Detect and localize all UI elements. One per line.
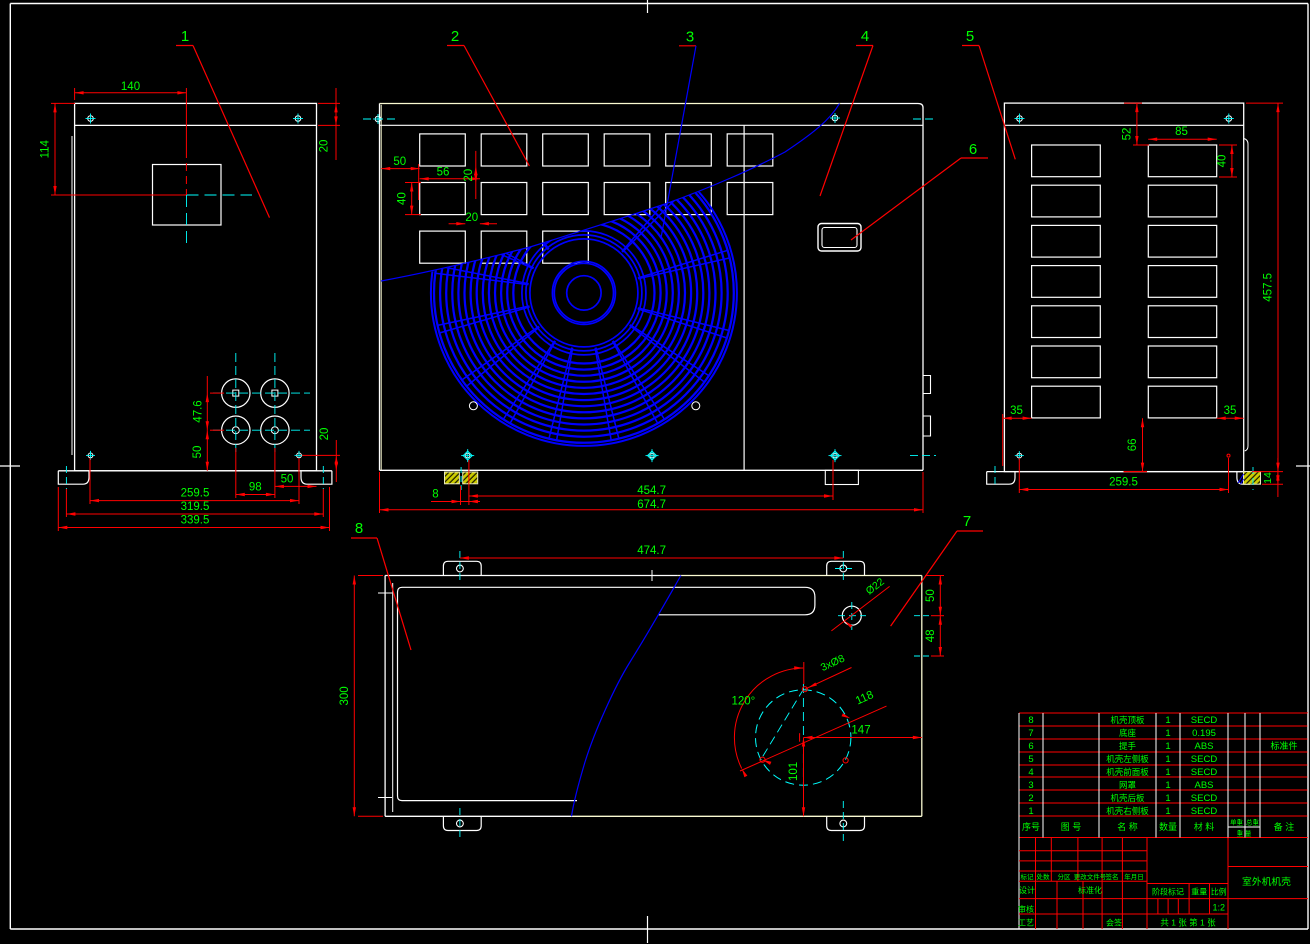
svg-text:457.5: 457.5: [1263, 273, 1275, 302]
svg-text:35: 35: [1224, 405, 1237, 417]
svg-text:1: 1: [1165, 728, 1170, 739]
svg-text:2: 2: [451, 28, 459, 45]
svg-text:年月日: 年月日: [1124, 872, 1144, 881]
svg-text:3: 3: [1028, 780, 1033, 791]
svg-text:7: 7: [1028, 728, 1033, 739]
svg-text:50: 50: [393, 156, 406, 168]
svg-text:SECD: SECD: [1191, 715, 1218, 726]
svg-text:50: 50: [925, 589, 937, 602]
svg-text:1:2: 1:2: [1212, 903, 1225, 913]
svg-text:SECD: SECD: [1191, 767, 1218, 778]
svg-text:8: 8: [1028, 715, 1033, 726]
svg-text:52: 52: [1121, 128, 1133, 141]
svg-text:20: 20: [465, 212, 478, 224]
svg-text:120°: 120°: [732, 696, 756, 708]
svg-text:3: 3: [686, 29, 694, 46]
svg-text:工艺: 工艺: [1018, 919, 1034, 928]
svg-text:网罩: 网罩: [1119, 780, 1137, 790]
svg-text:SECD: SECD: [1191, 754, 1218, 765]
svg-text:设计: 设计: [1019, 885, 1035, 895]
svg-text:签名: 签名: [1106, 872, 1119, 881]
svg-text:0.195: 0.195: [1192, 728, 1216, 739]
svg-text:机壳左侧板: 机壳左侧板: [1106, 754, 1149, 764]
svg-text:机壳前面板: 机壳前面板: [1106, 767, 1149, 777]
svg-text:序号: 序号: [1022, 821, 1040, 832]
svg-text:底座: 底座: [1119, 728, 1137, 738]
svg-text:1: 1: [1028, 806, 1033, 817]
svg-text:阶段标记: 阶段标记: [1152, 887, 1184, 897]
svg-text:48: 48: [925, 630, 937, 643]
svg-text:会签: 会签: [1106, 918, 1122, 928]
svg-text:标准件: 标准件: [1270, 740, 1297, 751]
svg-text:319.5: 319.5: [181, 501, 210, 513]
svg-text:6: 6: [969, 141, 977, 158]
svg-text:标准化: 标准化: [1078, 885, 1102, 895]
svg-text:总重: 总重: [1246, 818, 1260, 827]
svg-text:共 1 张 第 1 张: 共 1 张 第 1 张: [1160, 918, 1216, 928]
svg-text:室外机机壳: 室外机机壳: [1242, 875, 1291, 888]
svg-text:材 料: 材 料: [1194, 821, 1215, 832]
svg-text:35: 35: [1010, 405, 1023, 417]
svg-text:1: 1: [1165, 767, 1170, 778]
svg-text:474.7: 474.7: [637, 545, 666, 557]
svg-text:名 称: 名 称: [1117, 821, 1138, 832]
svg-text:处数: 处数: [1037, 872, 1051, 881]
svg-text:1: 1: [1165, 780, 1170, 791]
svg-text:259.5: 259.5: [1109, 477, 1138, 489]
svg-text:机壳顶板: 机壳顶板: [1110, 715, 1145, 725]
svg-text:40: 40: [1216, 155, 1228, 168]
svg-text:5: 5: [966, 28, 974, 45]
svg-text:674.7: 674.7: [637, 499, 666, 511]
svg-text:1: 1: [1165, 806, 1170, 817]
svg-text:114: 114: [40, 139, 52, 158]
svg-text:分区: 分区: [1058, 872, 1072, 881]
svg-text:比例: 比例: [1211, 887, 1227, 897]
svg-text:8: 8: [432, 489, 438, 501]
svg-text:20: 20: [319, 140, 331, 153]
svg-text:40: 40: [396, 192, 408, 205]
svg-text:101: 101: [788, 762, 800, 781]
svg-text:50: 50: [192, 446, 204, 459]
svg-text:8: 8: [355, 520, 363, 537]
svg-text:454.7: 454.7: [637, 485, 666, 497]
svg-text:SECD: SECD: [1191, 793, 1218, 804]
svg-text:259.5: 259.5: [181, 488, 210, 500]
svg-text:2: 2: [1028, 793, 1033, 804]
svg-text:ABS: ABS: [1194, 780, 1213, 791]
svg-text:1: 1: [1165, 793, 1170, 804]
svg-text:SECD: SECD: [1191, 806, 1218, 817]
svg-text:4: 4: [861, 28, 869, 45]
svg-text:1: 1: [181, 28, 189, 45]
svg-text:提手: 提手: [1119, 741, 1137, 751]
svg-text:重量: 重量: [1191, 887, 1207, 897]
svg-text:7: 7: [963, 513, 971, 530]
svg-text:更改文件号: 更改文件号: [1074, 872, 1107, 881]
svg-text:147: 147: [851, 725, 870, 737]
svg-text:20: 20: [463, 169, 475, 182]
svg-text:5: 5: [1028, 754, 1033, 765]
svg-text:重 量: 重 量: [1237, 830, 1252, 838]
svg-text:4: 4: [1028, 767, 1033, 778]
svg-text:14: 14: [1262, 472, 1274, 484]
svg-text:85: 85: [1175, 126, 1188, 138]
svg-text:300: 300: [339, 686, 351, 705]
svg-text:140: 140: [121, 81, 140, 93]
svg-text:50: 50: [281, 474, 294, 486]
svg-text:66: 66: [1127, 439, 1139, 452]
svg-text:20: 20: [319, 428, 331, 441]
svg-text:图 号: 图 号: [1061, 822, 1082, 832]
svg-text:ABS: ABS: [1194, 741, 1213, 752]
svg-text:6: 6: [1028, 741, 1033, 752]
svg-text:机壳右侧板: 机壳右侧板: [1106, 806, 1149, 816]
svg-text:339.5: 339.5: [181, 515, 210, 527]
svg-text:机壳后板: 机壳后板: [1110, 793, 1145, 803]
svg-text:审核: 审核: [1018, 904, 1034, 914]
svg-text:单重: 单重: [1230, 818, 1244, 827]
svg-text:1: 1: [1165, 754, 1170, 765]
svg-text:备 注: 备 注: [1274, 821, 1295, 832]
svg-text:98: 98: [249, 482, 262, 494]
svg-text:1: 1: [1165, 741, 1170, 752]
svg-text:数量: 数量: [1159, 821, 1177, 832]
svg-text:47.6: 47.6: [193, 400, 205, 422]
svg-text:1: 1: [1165, 715, 1170, 726]
svg-text:标记: 标记: [1021, 872, 1035, 881]
svg-text:56: 56: [437, 166, 450, 178]
